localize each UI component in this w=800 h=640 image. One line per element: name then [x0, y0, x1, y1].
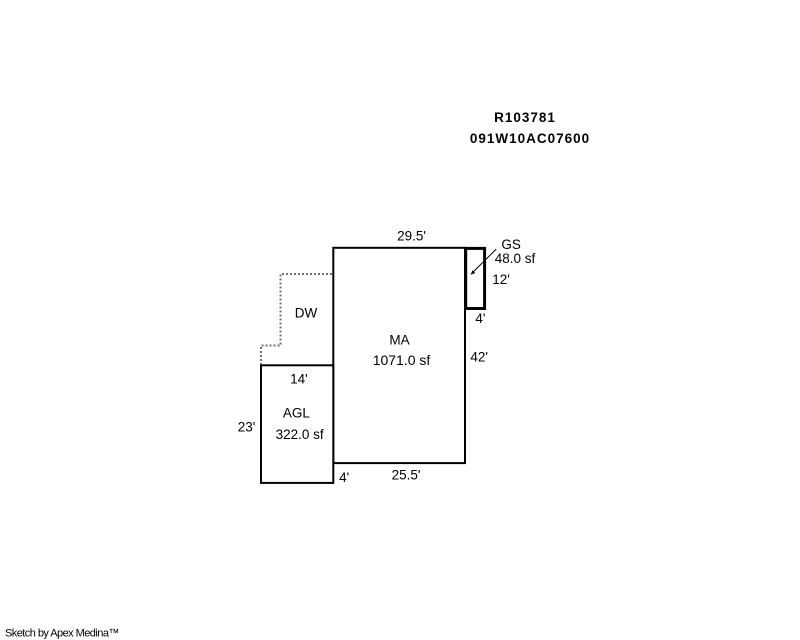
svg-text:Sketch by Apex Medina™: Sketch by Apex Medina™	[5, 628, 119, 640]
svg-text:4': 4'	[475, 311, 485, 326]
svg-text:322.0 sf: 322.0 sf	[276, 427, 324, 442]
svg-text:AGL: AGL	[283, 406, 311, 421]
svg-text:4': 4'	[339, 470, 349, 485]
svg-text:14': 14'	[290, 372, 308, 387]
svg-text:23': 23'	[238, 420, 256, 435]
svg-text:12': 12'	[492, 272, 510, 287]
svg-text:091W10AC07600: 091W10AC07600	[470, 131, 590, 146]
svg-text:48.0 sf: 48.0 sf	[495, 251, 536, 266]
svg-text:R103781: R103781	[494, 110, 556, 125]
svg-text:1071.0 sf: 1071.0 sf	[373, 352, 431, 368]
svg-text:DW: DW	[295, 306, 318, 321]
svg-text:42': 42'	[470, 350, 488, 365]
svg-text:MA: MA	[389, 333, 409, 348]
svg-text:29.5': 29.5'	[397, 229, 426, 244]
svg-text:25.5': 25.5'	[392, 468, 421, 483]
svg-text:GS: GS	[501, 237, 521, 252]
